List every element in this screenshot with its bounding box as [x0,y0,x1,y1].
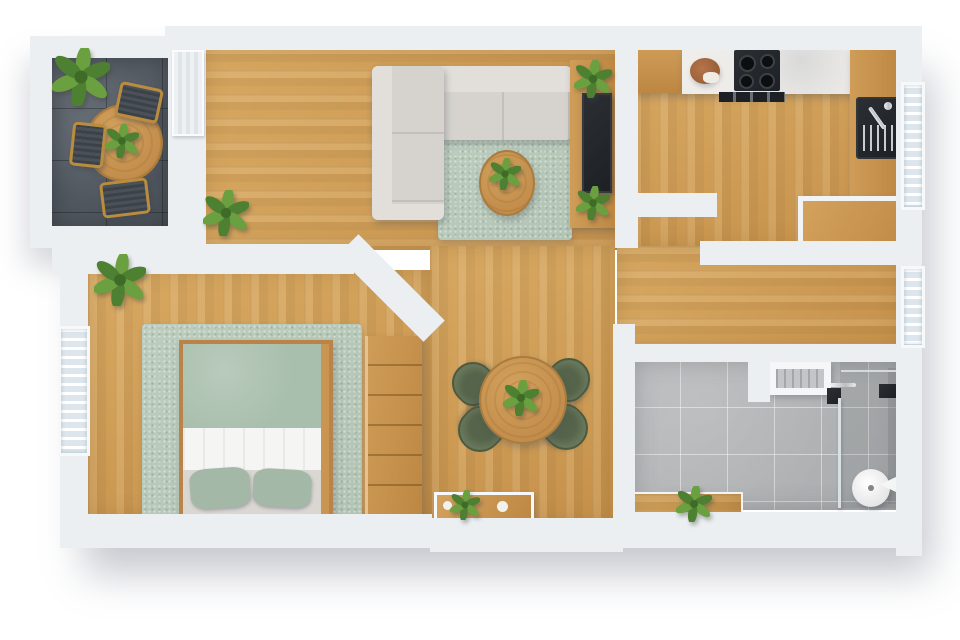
wall-bathroom-bottom [618,512,910,548]
kitchen-cabinet-left [632,46,684,93]
wall-bottom-dining [430,518,623,552]
burner [759,73,775,89]
wall-kitchen-south-a [617,193,717,217]
gas-cooktop [734,50,780,91]
shower-glass-screen [838,398,841,508]
sink-faucet-base [884,102,892,110]
dining-table-plant [503,380,539,416]
balcony-chair-left [69,121,107,168]
living-room-floor-plant [203,190,249,236]
entry-nook-plant [676,486,712,522]
mixer-bar [830,383,856,387]
balcony-sliding-door [172,50,204,136]
kitchen-east-window [901,82,925,210]
oven-front-strip [719,92,785,102]
dining-console-plant [450,490,480,520]
bed-pillow-left [189,466,252,510]
floor-plan [0,0,960,640]
burner [760,54,775,69]
shower-drain [868,485,874,491]
wall-balcony-left [30,36,52,246]
burner [739,55,756,72]
tv-console-plant-bottom [576,186,610,220]
bed-duvet [183,344,321,430]
vanity-basin [776,369,824,388]
wall-kitchen-south-b [700,241,898,265]
balcony-table-plant [105,124,139,158]
hallway-east-window [901,266,925,348]
tv-screen [582,93,612,193]
balcony-chair-bottom [99,177,151,219]
burner [739,74,754,89]
bed [179,340,333,526]
balcony-plant [52,48,110,106]
tv-console-plant-top [574,60,612,98]
shower-control [879,384,896,398]
sofa-left-section [372,66,444,220]
bed-pillow-right [252,468,312,509]
bedroom-plant [94,254,146,306]
bedroom-chest-of-drawers [365,336,422,518]
bread-cloth [703,72,719,83]
bathroom-vanity [769,362,831,395]
wall-bottom-bedroom [60,514,432,548]
wall-top [165,26,922,50]
wall-bathroom-stub [748,358,770,402]
sink-drainboard [863,125,893,151]
console-dish-2 [497,501,508,512]
shower-glass-top [841,370,897,372]
bedroom-west-window [58,326,90,456]
coffee-table-plant [489,158,521,190]
bed-blanket [183,428,321,472]
